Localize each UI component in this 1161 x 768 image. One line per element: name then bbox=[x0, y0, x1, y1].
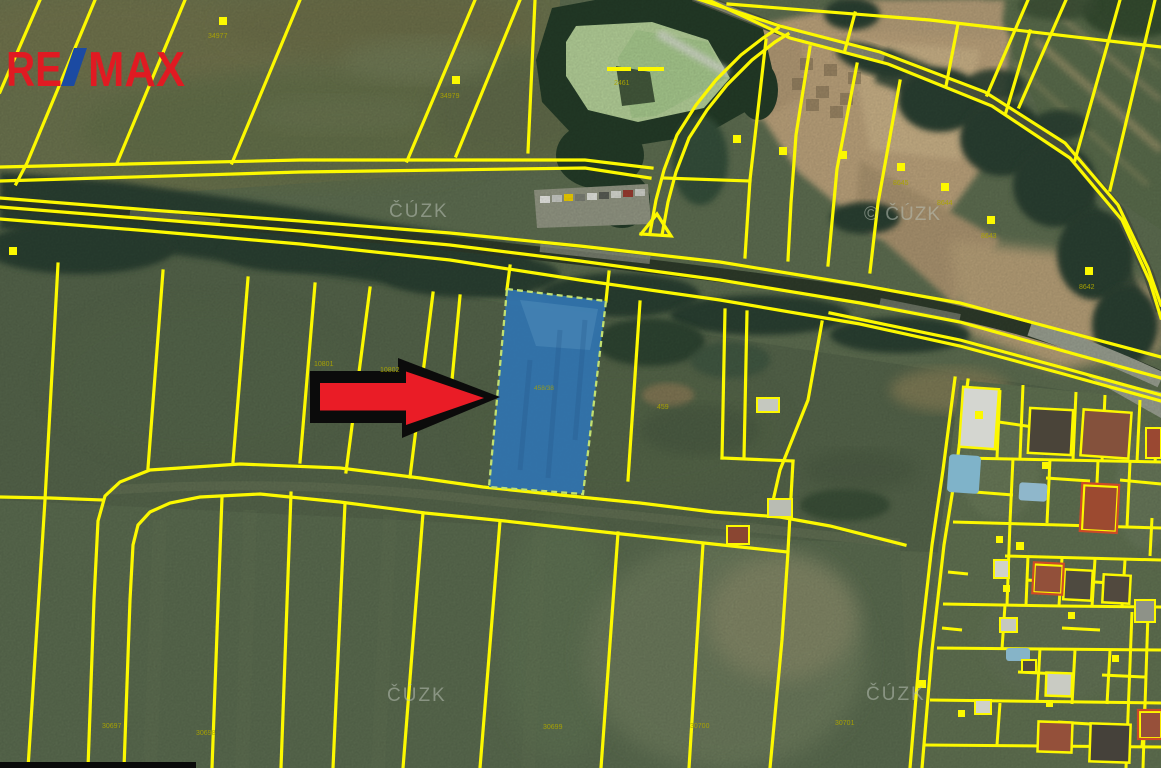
svg-text:ČÚZK: ČÚZK bbox=[866, 683, 926, 705]
svg-text:8643: 8643 bbox=[981, 233, 997, 240]
svg-text:MAX: MAX bbox=[88, 43, 185, 97]
svg-text:30698: 30698 bbox=[196, 730, 216, 737]
svg-text:459: 459 bbox=[657, 404, 669, 411]
svg-text:2461: 2461 bbox=[614, 80, 630, 87]
svg-text:ČÚZK: ČÚZK bbox=[387, 684, 447, 706]
svg-text:30700: 30700 bbox=[690, 723, 710, 730]
svg-text:30699: 30699 bbox=[543, 724, 563, 731]
svg-text:8642: 8642 bbox=[1079, 284, 1095, 291]
svg-text:34979: 34979 bbox=[440, 93, 460, 100]
svg-text:© ČÚZK: © ČÚZK bbox=[864, 203, 941, 225]
svg-text:30701: 30701 bbox=[835, 720, 855, 727]
svg-text:ČÚZK: ČÚZK bbox=[389, 200, 449, 222]
svg-text:30697: 30697 bbox=[102, 723, 122, 730]
svg-text:458/38: 458/38 bbox=[534, 385, 554, 392]
svg-text:10802: 10802 bbox=[380, 367, 400, 374]
svg-text:8645: 8645 bbox=[893, 180, 909, 187]
svg-text:10801: 10801 bbox=[314, 361, 334, 368]
svg-text:34977: 34977 bbox=[208, 33, 228, 40]
svg-text:RE: RE bbox=[6, 43, 62, 97]
